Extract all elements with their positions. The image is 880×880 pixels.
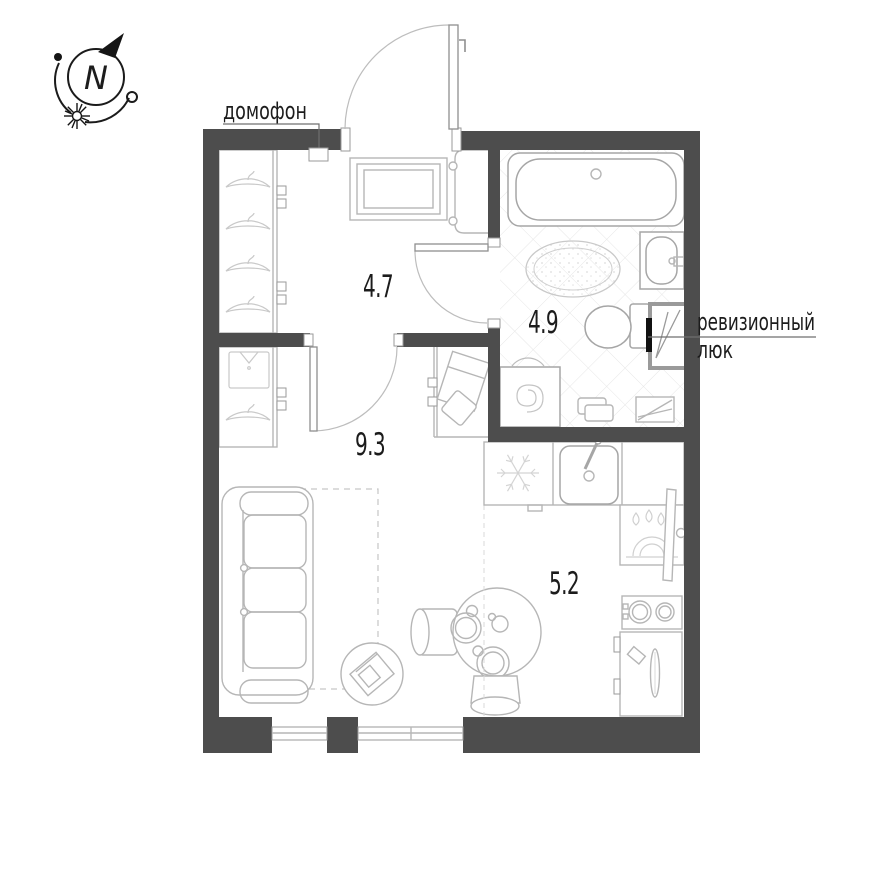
hinge-bump — [449, 217, 457, 225]
inspection-hatch — [646, 304, 686, 368]
kitchen-base-cabinet — [614, 632, 682, 716]
wall-top-left — [203, 129, 345, 150]
entry-door-leaf — [449, 25, 458, 129]
hatch-label-line1: ревизионный — [697, 308, 815, 336]
rail-clip — [277, 199, 286, 208]
bathroom-sink — [640, 232, 684, 289]
room-door-leaf — [310, 347, 317, 431]
bathtub — [508, 153, 684, 226]
wall-bathroom-bottom — [488, 427, 700, 442]
bath-mat — [526, 241, 620, 297]
kitchen-sink — [560, 438, 618, 504]
compass-north-letter: N — [84, 59, 108, 97]
hallway-cabinet — [449, 150, 489, 233]
toilet — [585, 304, 650, 348]
toilet-bowl — [585, 306, 631, 348]
wall-stub-right — [397, 333, 488, 347]
hatch-bar — [646, 318, 652, 352]
cabinet-handle — [614, 637, 620, 652]
rail-clip — [428, 397, 437, 406]
wall-stub-left — [203, 333, 310, 347]
intercom-device — [309, 148, 328, 161]
wall-bottom-pier — [327, 717, 358, 753]
wall-top-right — [457, 131, 700, 150]
wall-bottom-pier — [203, 717, 272, 753]
rail-clip — [277, 388, 286, 397]
area-label-bathroom: 4.9 — [528, 305, 558, 341]
rail-clip — [277, 295, 286, 304]
rail-clip — [428, 378, 437, 387]
kitchen-right-column — [614, 489, 686, 716]
wall-bathroom-upper — [488, 150, 500, 246]
wall-left — [203, 129, 219, 753]
stove — [622, 596, 682, 629]
door-handle — [459, 40, 465, 52]
sofa — [222, 487, 313, 703]
drying-tray — [636, 397, 674, 422]
compass-needle — [98, 33, 124, 58]
rail-clip — [277, 282, 286, 291]
cabinet-handle — [614, 679, 620, 694]
dining-table — [451, 588, 541, 679]
floor-plan: домофон ревизионный люк 4.7 4.9 9.3 5.2 … — [0, 0, 880, 880]
washing-machine — [500, 358, 560, 427]
intercom-label: домофон — [223, 97, 307, 125]
wall-bottom-pier — [463, 717, 700, 753]
side-table — [341, 643, 403, 705]
bathroom-door-leaf — [415, 244, 488, 251]
hinge-bump — [449, 162, 457, 170]
wall-bathroom-lower — [488, 321, 500, 427]
area-label-corridor: 9.3 — [355, 427, 385, 463]
chair-bottom — [471, 676, 520, 715]
kitchen-counter-top — [484, 438, 684, 511]
hallway-wardrobe-lower — [219, 347, 286, 447]
area-label-kitchen: 5.2 — [549, 566, 579, 602]
rail-clip — [277, 401, 286, 410]
rail-clip — [277, 186, 286, 195]
hatch-label-line2: люк — [697, 336, 733, 364]
sun-icon — [64, 103, 90, 129]
corridor-desk — [428, 347, 490, 437]
armchair-left — [411, 609, 457, 655]
area-label-hallway: 4.7 — [363, 269, 393, 305]
entry-doormat — [350, 158, 447, 220]
windows — [272, 727, 463, 740]
compass-north-icon: N — [54, 33, 137, 129]
hallway-wardrobe-upper — [219, 150, 286, 333]
floor-plan-canvas: домофон ревизионный люк 4.7 4.9 9.3 5.2 … — [0, 0, 880, 880]
